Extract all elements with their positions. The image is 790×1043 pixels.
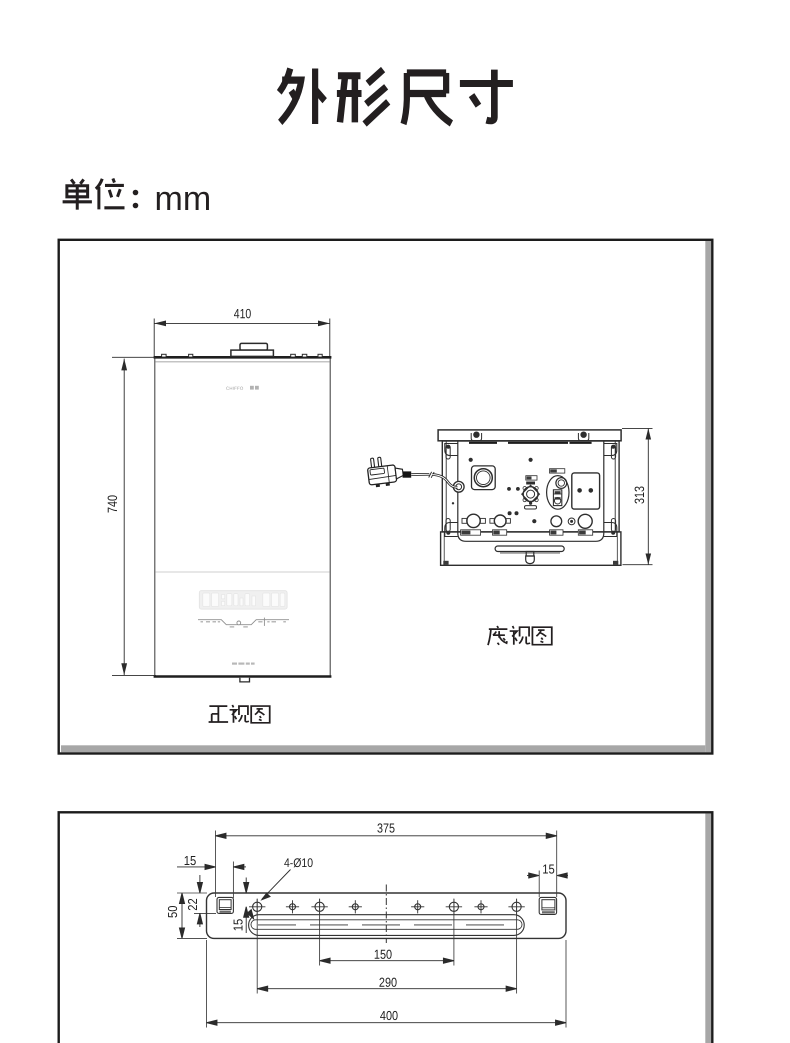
svg-text:15: 15 xyxy=(542,861,555,876)
svg-text:410: 410 xyxy=(234,306,252,321)
svg-text:313: 313 xyxy=(632,486,647,504)
svg-text:15: 15 xyxy=(230,919,245,932)
svg-text:4-Ø10: 4-Ø10 xyxy=(284,856,313,870)
svg-text:375: 375 xyxy=(377,820,395,835)
svg-text:150: 150 xyxy=(374,947,392,962)
svg-text:50: 50 xyxy=(165,906,180,919)
svg-text:740: 740 xyxy=(105,495,120,513)
svg-text:15: 15 xyxy=(184,853,197,868)
svg-text:mm: mm xyxy=(154,180,211,218)
svg-text:22: 22 xyxy=(185,898,200,911)
svg-text:290: 290 xyxy=(379,975,397,990)
svg-text:CHIFFO: CHIFFO xyxy=(226,386,244,391)
svg-text:400: 400 xyxy=(380,1008,398,1023)
